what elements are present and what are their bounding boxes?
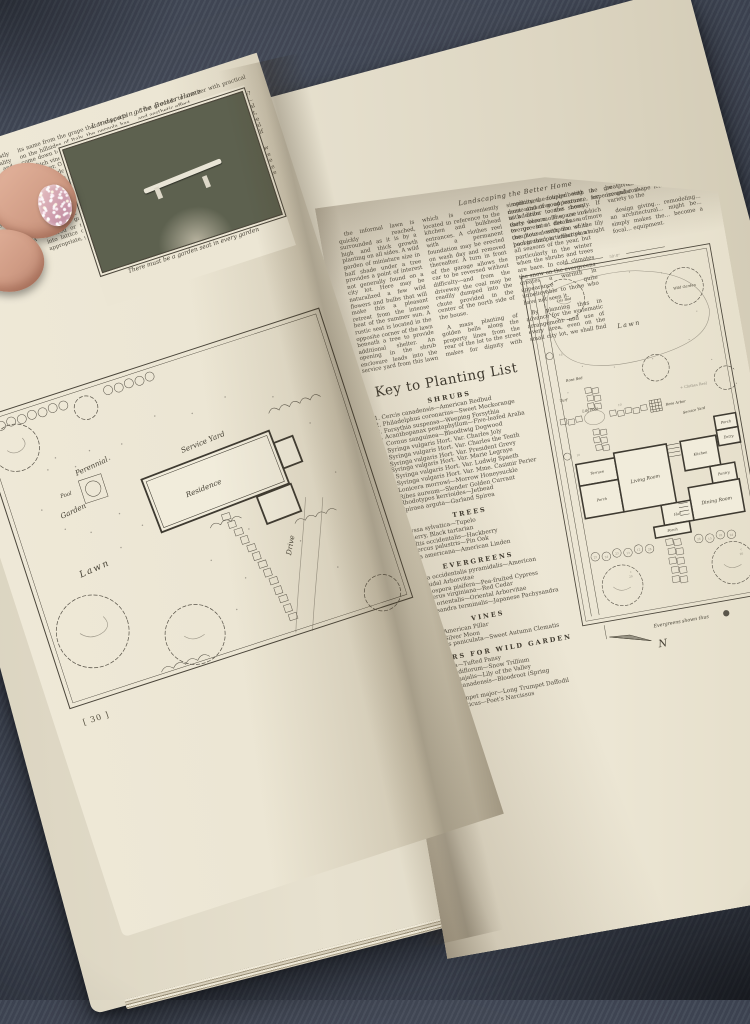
tree-qty-letter: c: [740, 547, 743, 551]
plan-footnotes: Evergreens shown thus N: [604, 603, 734, 659]
svg-text:25: 25: [593, 555, 597, 560]
garden-label: Garden: [59, 501, 88, 521]
pool-label: Pool: [59, 491, 73, 501]
tree-qty-number: 20: [629, 574, 633, 579]
svg-text:10: 10: [576, 453, 580, 458]
svg-text:23: 23: [615, 551, 619, 556]
tree-qty-number: 20: [739, 551, 743, 556]
rose-arbor: [649, 399, 663, 413]
evergreen-symbol-icon: [723, 610, 730, 617]
flagstone-walk: [221, 502, 298, 631]
north-label: N: [657, 638, 670, 651]
evergreen-legend-label: Evergreens shown thus: [652, 614, 710, 630]
north-arrow-icon: [604, 618, 651, 649]
clothes-reel-label: + Clothes Reel: [680, 381, 708, 390]
pool: [78, 474, 108, 504]
lawn-outline: [543, 257, 716, 375]
rose-bed-label: Rose Bed: [565, 376, 584, 383]
svg-text:18: 18: [718, 533, 722, 538]
flagstone-walk-vertical: [585, 386, 610, 453]
turf-label: Turf: [560, 398, 569, 403]
lawn-label: Lawn: [77, 558, 112, 581]
tree-icon: [641, 352, 672, 383]
svg-text:24: 24: [604, 555, 608, 560]
tree-qty-letter: c: [630, 570, 633, 574]
perennial-garden-label: Perennial: [73, 454, 110, 478]
lily-pool-label: Lily Pool: [581, 407, 598, 414]
svg-text:28: 28: [648, 547, 652, 552]
flagstone-walk-horizontal: [560, 404, 648, 426]
right-page-body-text: the informal lawn is quickly reached, su…: [337, 205, 523, 379]
svg-text:26: 26: [697, 537, 701, 542]
front-walk: [666, 537, 689, 585]
svg-text:15: 15: [708, 536, 712, 541]
walk-dimension: 10': [618, 402, 623, 407]
lawn-label: Lawn: [616, 319, 641, 330]
svg-text:24: 24: [729, 533, 733, 538]
svg-text:12: 12: [637, 547, 641, 552]
tree-icon: [541, 255, 707, 329]
drive-label: Drive: [284, 535, 297, 557]
svg-text:13: 13: [626, 551, 630, 556]
svg-text:50'-0": 50'-0": [609, 253, 621, 259]
wild-garden-label: Wild Garden: [673, 283, 697, 291]
photo-of-open-magazine: { "magazine": { "running_header": "Lands…: [0, 0, 750, 1000]
house-outline: [572, 413, 750, 550]
shrub-border-clouds: [95, 393, 387, 672]
service-yard-label: Service Yard: [683, 406, 707, 415]
rose-arbor-label: Rose Arbor: [664, 399, 686, 407]
